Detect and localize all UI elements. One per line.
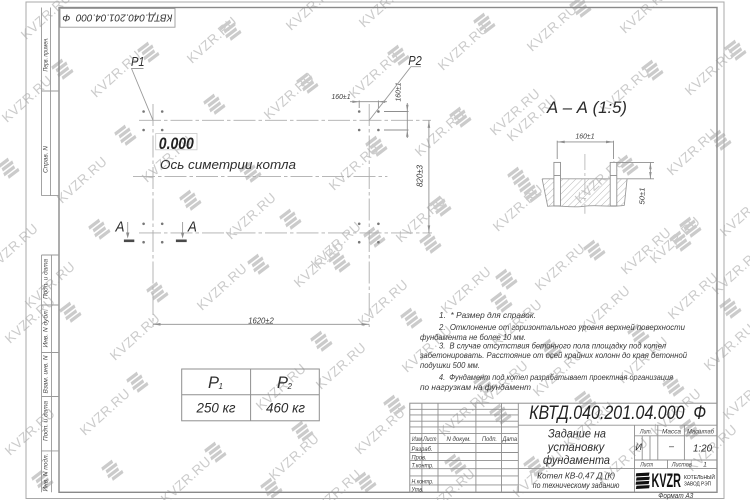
svg-text:Перв. примен.: Перв. примен. <box>43 38 50 72</box>
svg-text:КВТД.040.201.04.000 Ф: КВТД.040.201.04.000 Ф <box>529 402 706 424</box>
svg-text:Масса: Масса <box>662 429 681 436</box>
svg-text:N докум.: N докум. <box>447 435 472 443</box>
svg-text:Р: Р <box>208 374 219 392</box>
svg-text:Подп. и дата: Подп. и дата <box>42 401 50 441</box>
svg-text:160±1: 160±1 <box>394 83 403 102</box>
svg-text:Утв.: Утв. <box>411 487 424 494</box>
svg-text:Задание на: Задание на <box>548 427 606 441</box>
svg-text:забетонировать. Расстояние от: забетонировать. Расстояние от осей крайн… <box>419 350 687 360</box>
svg-text:Т.контр.: Т.контр. <box>412 463 434 470</box>
svg-text:Лит.: Лит. <box>639 429 652 436</box>
svg-text:0.000: 0.000 <box>159 134 194 153</box>
svg-text:Н.контр.: Н.контр. <box>412 478 434 485</box>
svg-text:Изм.Лист: Изм.Лист <box>412 436 437 443</box>
svg-text:Разраб.: Разраб. <box>412 445 433 453</box>
svg-text:A: A <box>115 220 125 236</box>
svg-text:160±1: 160±1 <box>576 132 595 141</box>
svg-text:2. Отклонение от горизонтальн: 2. Отклонение от горизонтального уровня … <box>438 322 685 332</box>
svg-text:Масштаб: Масштаб <box>687 428 715 436</box>
svg-text:2: 2 <box>287 382 293 391</box>
svg-text:Дата: Дата <box>502 436 517 443</box>
svg-text:И: И <box>635 442 642 452</box>
svg-text:50±1: 50±1 <box>637 188 646 205</box>
svg-text:4. Фундамент под котел разраб: 4. Фундамент под котел разрабатывает про… <box>439 372 673 382</box>
svg-text:P2: P2 <box>408 53 422 68</box>
svg-text:1620±2: 1620±2 <box>248 315 274 325</box>
svg-text:по нагрузкам на фундамент: по нагрузкам на фундамент <box>420 382 531 392</box>
svg-text:1:20: 1:20 <box>693 443 712 455</box>
svg-text:Листов: Листов <box>671 462 692 469</box>
svg-text:Пров.: Пров. <box>412 454 427 461</box>
svg-text:1. * Размер для справок.: 1. * Размер для справок. <box>439 310 536 320</box>
svg-text:Котел КВ-0,47 Д (К): Котел КВ-0,47 Д (К) <box>537 471 615 481</box>
svg-text:А – А (1:5): А – А (1:5) <box>546 98 627 117</box>
svg-text:160±1: 160±1 <box>332 92 351 101</box>
svg-text:подушки 500 мм.: подушки 500 мм. <box>420 360 480 370</box>
svg-text:A: A <box>187 220 197 236</box>
svg-text:P1: P1 <box>131 54 145 69</box>
svg-text:Формат А3: Формат А3 <box>658 491 693 500</box>
svg-text:250 кг: 250 кг <box>196 401 236 416</box>
svg-text:Инв. N дубл.: Инв. N дубл. <box>42 310 50 348</box>
svg-text:1: 1 <box>219 382 223 391</box>
svg-text:460 кг: 460 кг <box>266 401 305 416</box>
svg-text:–: – <box>668 441 675 451</box>
svg-text:820±3: 820±3 <box>416 164 425 187</box>
svg-text:ЗАВОД РЭП: ЗАВОД РЭП <box>684 482 711 488</box>
svg-text:Р: Р <box>277 374 288 392</box>
svg-text:Лист: Лист <box>639 462 653 469</box>
svg-text:Ось симетрии котла: Ось симетрии котла <box>160 158 296 172</box>
svg-text:Справ. N: Справ. N <box>43 146 50 173</box>
svg-text:3. В случае отсутствия бетонн: 3. В случае отсутствия бетонного пола пл… <box>439 341 666 351</box>
svg-text:1: 1 <box>703 462 707 469</box>
svg-text:КВТД.040.201.04.000 Ф: КВТД.040.201.04.000 Ф <box>62 12 172 23</box>
svg-text:по техническому заданию: по техническому заданию <box>533 480 620 490</box>
svg-text:Инв. N подл.: Инв. N подл. <box>42 454 50 492</box>
svg-text:КОТЕЛЬНЫЙ: КОТЕЛЬНЫЙ <box>684 473 715 481</box>
svg-text:фундамента: фундамента <box>543 453 610 467</box>
svg-text:KVZR: KVZR <box>652 470 682 492</box>
svg-text:Подп. и дата: Подп. и дата <box>42 259 50 299</box>
svg-text:установку: установку <box>547 440 605 454</box>
svg-text:Взам. инв. N: Взам. инв. N <box>43 355 50 393</box>
svg-text:Подп.: Подп. <box>482 435 497 443</box>
